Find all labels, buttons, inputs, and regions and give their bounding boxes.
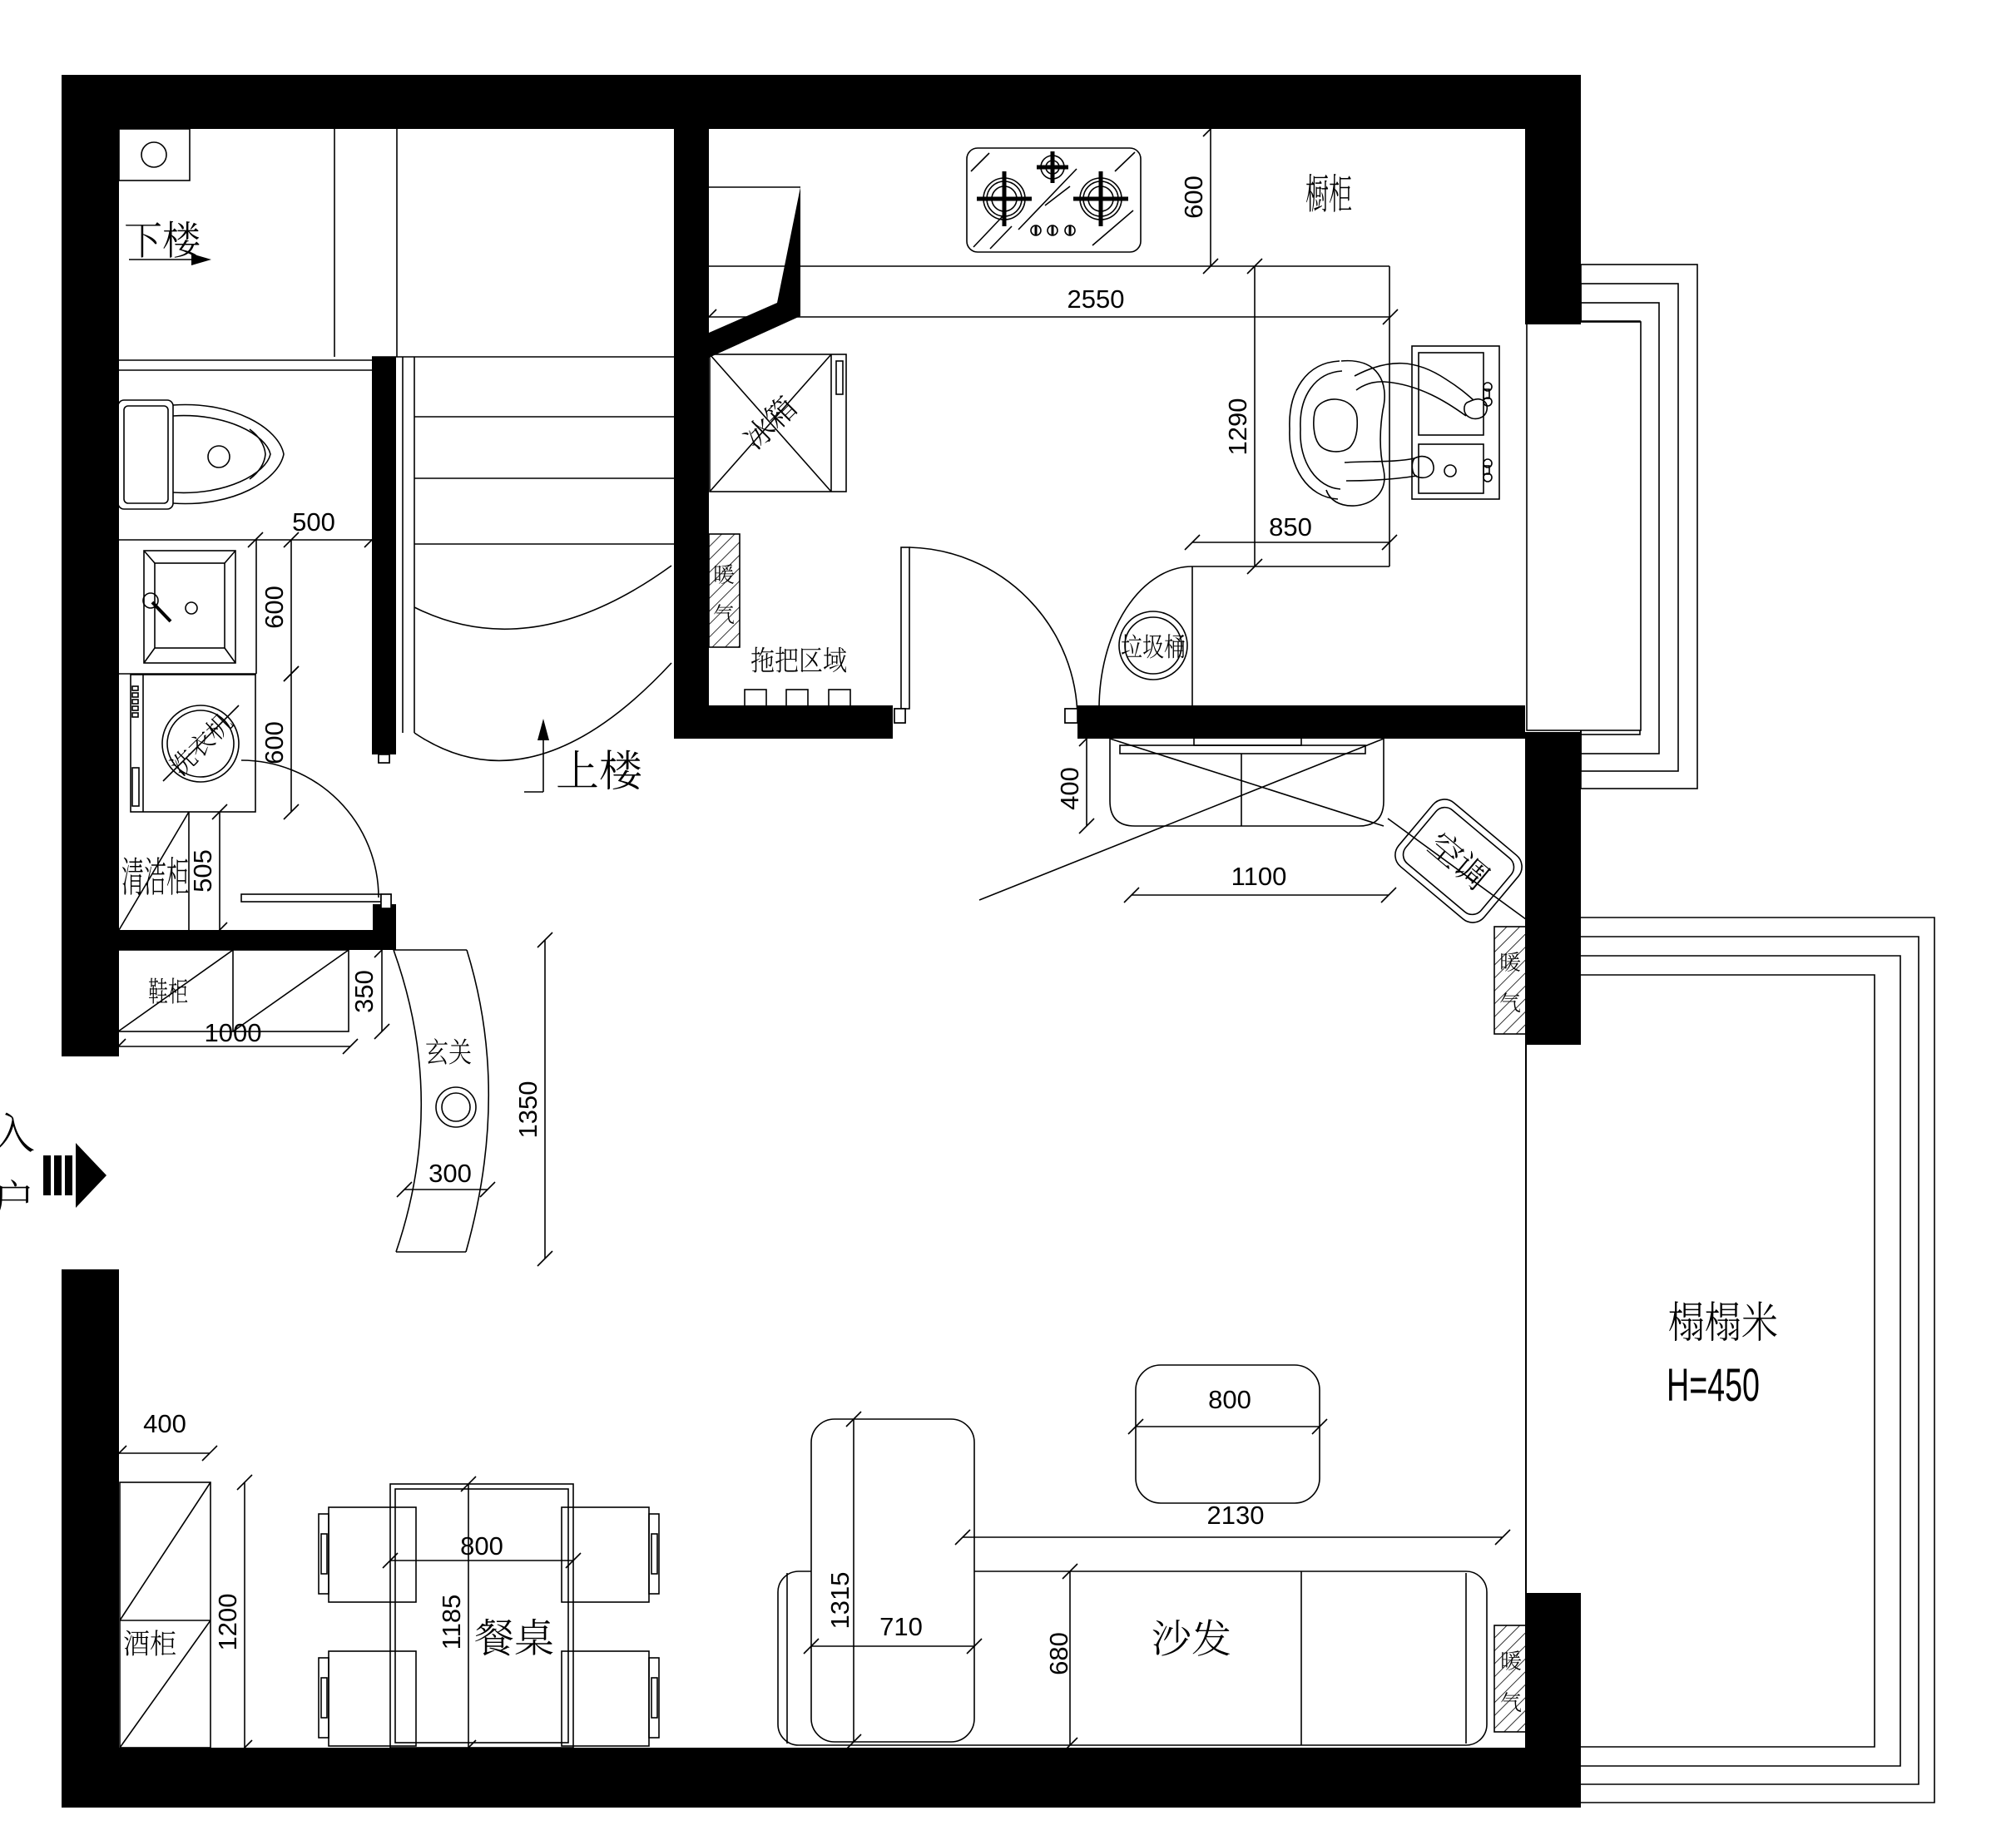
svg-text:600: 600 bbox=[260, 721, 289, 764]
svg-text:1185: 1185 bbox=[437, 1595, 466, 1650]
svg-text:350: 350 bbox=[349, 970, 379, 1013]
svg-text:1290: 1290 bbox=[1223, 398, 1252, 456]
svg-text:2550: 2550 bbox=[1067, 284, 1125, 314]
svg-text:505: 505 bbox=[188, 849, 217, 893]
svg-text:800: 800 bbox=[1208, 1385, 1251, 1414]
svg-text:800: 800 bbox=[460, 1531, 503, 1561]
svg-text:400: 400 bbox=[1055, 767, 1084, 810]
svg-text:680: 680 bbox=[1044, 1632, 1073, 1675]
svg-text:1000: 1000 bbox=[205, 1018, 262, 1047]
svg-text:1200: 1200 bbox=[213, 1594, 242, 1651]
svg-text:1315: 1315 bbox=[825, 1572, 854, 1630]
svg-text:H=450: H=450 bbox=[1667, 1358, 1760, 1411]
svg-text:850: 850 bbox=[1269, 512, 1312, 542]
svg-text:600: 600 bbox=[1179, 176, 1208, 219]
svg-text:400: 400 bbox=[143, 1409, 186, 1438]
svg-text:500: 500 bbox=[292, 507, 335, 537]
svg-text:1100: 1100 bbox=[1231, 862, 1287, 891]
svg-text:710: 710 bbox=[879, 1612, 923, 1641]
svg-text:2130: 2130 bbox=[1207, 1501, 1265, 1530]
svg-text:600: 600 bbox=[260, 586, 289, 629]
svg-text:300: 300 bbox=[428, 1159, 472, 1188]
svg-text:1350: 1350 bbox=[513, 1081, 542, 1139]
